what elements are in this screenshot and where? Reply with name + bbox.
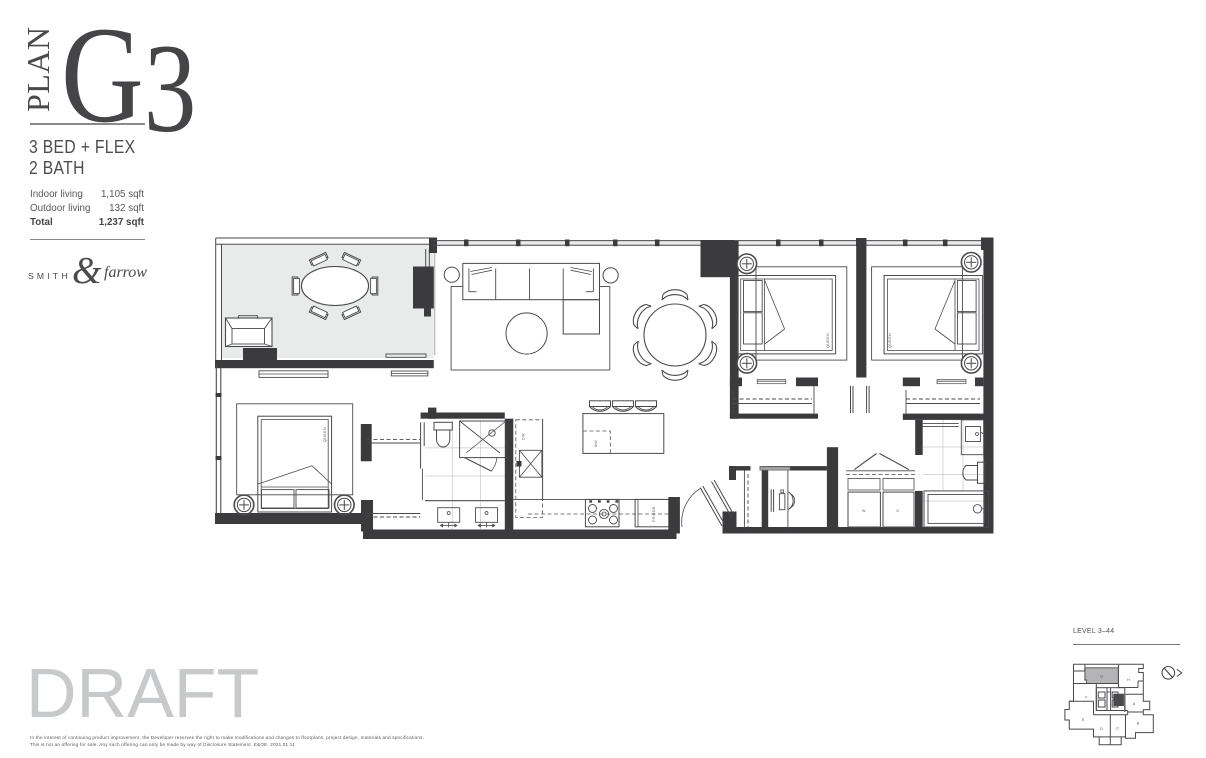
svg-text:H: H bbox=[1127, 678, 1130, 682]
svg-text:D: D bbox=[1100, 727, 1103, 731]
svg-text:A: A bbox=[1133, 702, 1136, 706]
svg-text:F: F bbox=[1085, 696, 1088, 700]
svg-text:E: E bbox=[1082, 718, 1085, 722]
svg-text:C: C bbox=[1116, 727, 1119, 731]
svg-text:G: G bbox=[1100, 675, 1103, 679]
svg-text:B: B bbox=[1137, 722, 1140, 726]
